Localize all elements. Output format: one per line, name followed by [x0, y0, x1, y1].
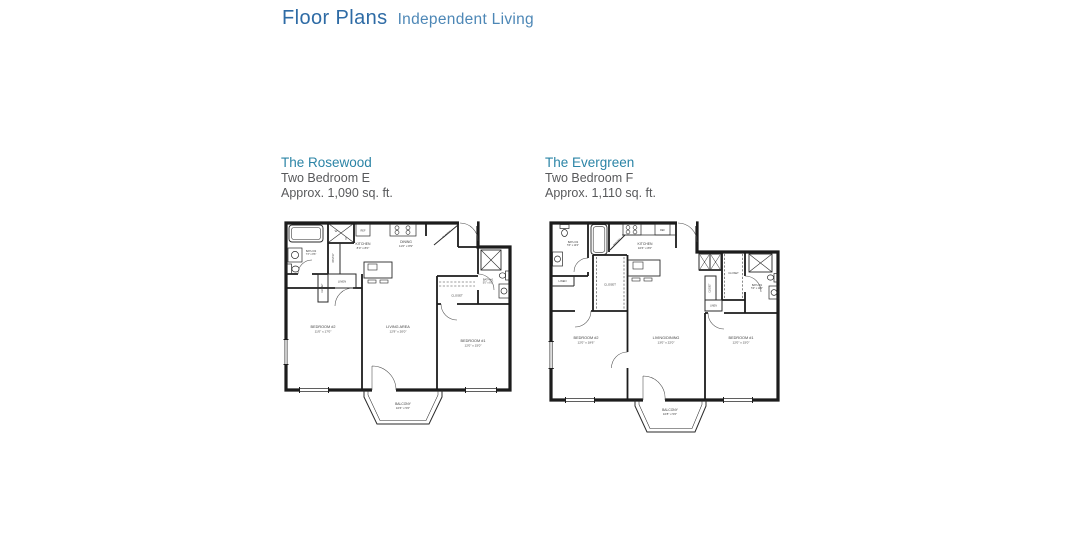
page-title: Floor Plans: [282, 7, 388, 29]
stove-icon: [390, 224, 416, 236]
sink-icon: [553, 252, 563, 266]
kitchen-island-icon: [628, 260, 660, 281]
rosewood-room-labels: KITCHEN 8'0" x 8'0" DINING 11'0" x 8'9" …: [306, 229, 494, 410]
bedroom2-dims: 11'0" x 17'0": [315, 330, 332, 334]
bedroom2-label: BEDROOM #2: [574, 336, 599, 340]
bedroom1-label: BEDROOM #1: [461, 339, 486, 343]
balcony-dims: 10'6" x 5'0": [396, 406, 410, 410]
toilet-icon: [560, 225, 569, 237]
living-label: LIVING/DINING: [653, 336, 680, 340]
bath2-dims: 5'3" x 10'0": [567, 244, 579, 247]
linen-label: LINEN: [559, 279, 567, 283]
hall-closet-label: CLOSET: [710, 283, 712, 293]
bath2-dims: 7'3" x 8'6": [306, 253, 317, 256]
washer-dryer-icon: [329, 224, 353, 242]
living-dims: 13'0" x 22'0": [658, 341, 675, 345]
brochure-page: Floor PlansIndependent Living The Rosewo…: [0, 0, 1080, 556]
kitchen-island-icon: [364, 262, 392, 283]
evergreen-caption: The Evergreen Two Bedroom F Approx. 1,11…: [545, 155, 656, 202]
shower-icon: [481, 250, 501, 270]
rosewood-fixtures: [287, 224, 510, 298]
walkin-closet-label: CLOSET: [728, 271, 739, 275]
balcony-dims: 10'8" x 5'0": [663, 412, 677, 416]
kitchen-dims: 10'6" x 8'0": [638, 246, 652, 250]
bath1-dims: 5'0" x 10'0": [751, 287, 763, 290]
sink-icon: [499, 284, 509, 298]
bedroom2-label: BEDROOM #2: [311, 325, 336, 329]
bedroom2-dims: 12'0" x 18'6": [578, 341, 595, 345]
evergreen-windows: [548, 341, 753, 403]
linen2-label: LINEN: [710, 306, 717, 308]
page-subtitle: Independent Living: [398, 11, 534, 28]
evergreen-area: Approx. 1,110 sq. ft.: [545, 186, 656, 202]
pantry-label: PANTRY: [613, 237, 622, 246]
rosewood-name: The Rosewood: [281, 155, 393, 171]
evergreen-name: The Evergreen: [545, 155, 656, 171]
living-label: LIVING AREA: [386, 325, 410, 329]
balcony-door-gap: [643, 397, 665, 403]
toilet-icon: [287, 264, 299, 274]
dining-dims: 11'0" x 8'9": [399, 244, 413, 248]
evergreen-walls: [551, 220, 778, 403]
entry-closet-label: CLOSET: [442, 230, 452, 239]
ref-label: REF: [361, 229, 366, 232]
bedroom1-dims: 12'0" x 15'0": [733, 341, 750, 345]
stove-icon: [623, 224, 641, 235]
hall-closet-label: CLOSET: [451, 294, 463, 298]
bedroom1-label: BEDROOM #1: [729, 336, 754, 340]
shower-icon: [749, 254, 772, 272]
rosewood-caption: The Rosewood Two Bedroom E Approx. 1,090…: [281, 155, 393, 202]
balcony-door-gap: [372, 387, 396, 393]
page-header: Floor PlansIndependent Living: [282, 7, 534, 30]
evergreen-type: Two Bedroom F: [545, 171, 656, 187]
evergreen-floorplan: BATH #2 5'3" x 10'0" LINEN PANTRY KITCHE…: [548, 212, 788, 444]
kitchen-dims: 8'0" x 8'0": [357, 246, 370, 250]
rosewood-area: Approx. 1,090 sq. ft.: [281, 186, 393, 202]
evergreen-room-labels: BATH #2 5'3" x 10'0" LINEN PANTRY KITCHE…: [559, 229, 763, 416]
ref-label: REF: [660, 229, 665, 232]
rosewood-type: Two Bedroom E: [281, 171, 393, 187]
pantry-label: PANTRY: [332, 253, 335, 263]
rosewood-floorplan: KITCHEN 8'0" x 8'0" DINING 11'0" x 8'9" …: [278, 212, 518, 440]
dryer-label: D: [345, 237, 348, 241]
living-dims: 12'9" x 20'0": [390, 330, 407, 334]
evergreen-balcony: [635, 400, 706, 432]
bathtub-icon: [591, 225, 607, 255]
closet-rod-lines: [439, 282, 475, 286]
washer-label: W: [335, 229, 338, 233]
bathtub-icon: [289, 225, 323, 242]
toilet-icon: [499, 271, 509, 280]
sink-icon: [288, 248, 302, 262]
central-closet-label: CLOSET: [604, 283, 616, 287]
linen-label: LINEN: [338, 280, 346, 284]
bath1-dims: 5'0" x 8'0": [483, 282, 494, 285]
bedroom1-dims: 12'0" x 15'0": [465, 344, 482, 348]
bedroom-closet-label: CLOSET: [322, 283, 324, 293]
